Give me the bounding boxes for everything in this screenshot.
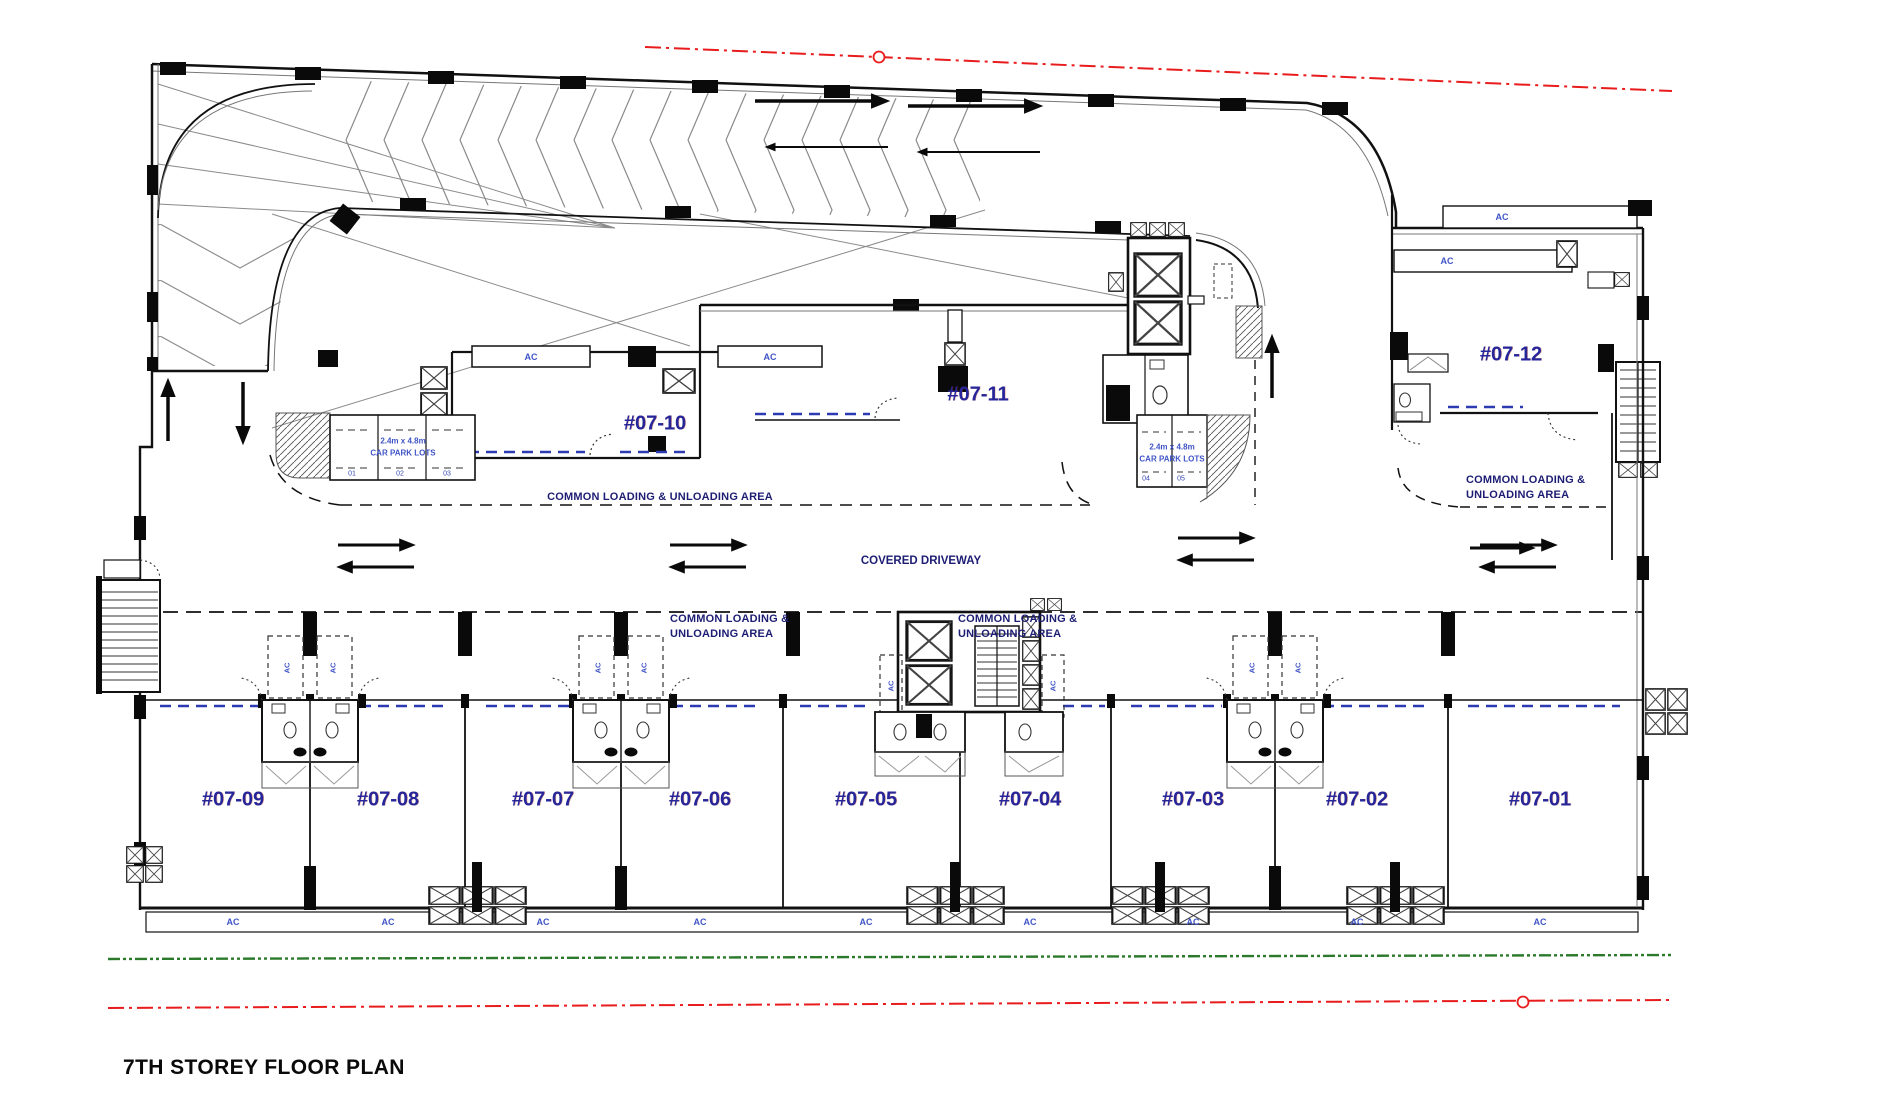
ac-label-vertical: AC <box>594 663 603 674</box>
carpark-lot-05: 05 <box>1177 476 1185 483</box>
covered-driveway <box>140 538 1643 612</box>
carpark-size-left: 2.4m x 4.8m <box>380 437 425 446</box>
boundary-line-green <box>108 955 1672 959</box>
ac-label: AC <box>1534 917 1547 927</box>
drawing-title: 7TH STOREY FLOOR PLAN <box>123 1056 405 1080</box>
ac-label: AC <box>694 917 707 927</box>
ac-label-vertical: AC <box>640 663 649 674</box>
carpark-lot-01: 01 <box>348 471 356 478</box>
ac-label: AC <box>525 352 538 362</box>
ac-label: AC <box>764 352 777 362</box>
boundary-line-red-bottom <box>108 997 1672 1009</box>
toilet-pods <box>240 636 1345 788</box>
unit-07-10-walls <box>421 305 822 458</box>
carpark-size-right: 2.4m x 4.8m <box>1149 443 1194 452</box>
unit-label-07-07: #07-07 <box>512 789 574 812</box>
common-loading-label-upper: COMMON LOADING & UNLOADING AREA <box>547 491 773 503</box>
ac-label: AC <box>1187 917 1200 927</box>
unit-label-07-01: #07-01 <box>1509 789 1571 812</box>
ac-label: AC <box>1441 256 1454 266</box>
carpark-lot-03: 03 <box>443 471 451 478</box>
central-core <box>875 599 1064 776</box>
unit-label-07-03: #07-03 <box>1162 789 1224 812</box>
unit-label-07-12: #07-12 <box>1480 344 1542 367</box>
boundary-line-red-top <box>645 47 1672 91</box>
unit-label-07-05: #07-05 <box>835 789 897 812</box>
unit-07-12-walls <box>1390 195 1660 560</box>
carpark-lot-02: 02 <box>396 471 404 478</box>
unit-label-07-02: #07-02 <box>1326 789 1388 812</box>
unit-label-07-06: #07-06 <box>669 789 731 812</box>
floor-plan-page: #07-10 #07-11 #07-12 #07-09 #07-08 #07-0… <box>0 0 1888 1110</box>
ac-label: AC <box>382 917 395 927</box>
lower-units <box>96 228 1687 932</box>
upper-units <box>270 195 1660 560</box>
unit-label-07-08: #07-08 <box>357 789 419 812</box>
ac-label: AC <box>1024 917 1037 927</box>
unit-label-07-04: #07-04 <box>999 789 1061 812</box>
carpark-lot-04: 04 <box>1142 476 1150 483</box>
covered-driveway-label: COVERED DRIVEWAY <box>861 555 981 567</box>
ac-label-vertical: AC <box>1248 663 1257 674</box>
ac-label: AC <box>1496 212 1509 222</box>
ac-label-vertical: AC <box>1049 681 1058 692</box>
ac-label: AC <box>1351 917 1364 927</box>
ac-label: AC <box>537 917 550 927</box>
unit-label-07-10: #07-10 <box>624 413 686 436</box>
left-stair <box>96 560 160 694</box>
common-loading-label-0712-line2: UNLOADING AREA <box>1466 489 1569 501</box>
ramp-herringbone-hatch <box>158 214 298 366</box>
ac-label-vertical: AC <box>1294 663 1303 674</box>
common-loading-label-0712-line1: COMMON LOADING & <box>1466 474 1585 486</box>
common-loading-label-walkway-left-line1: COMMON LOADING & <box>670 613 789 625</box>
carpark-name-left: CAR PARK LOTS <box>370 449 435 458</box>
unit-label-07-09: #07-09 <box>202 789 264 812</box>
common-loading-label-walkway-right-line1: COMMON LOADING & <box>958 613 1077 625</box>
common-loading-label-walkway-left-line2: UNLOADING AREA <box>670 628 773 640</box>
ramp-chevron-hatch <box>337 80 980 219</box>
ac-label-vertical: AC <box>887 681 896 692</box>
carpark-name-right: CAR PARK LOTS <box>1139 455 1204 464</box>
ramp-area <box>147 62 1396 441</box>
ac-label: AC <box>227 917 240 927</box>
ac-label-vertical: AC <box>283 663 292 674</box>
ac-label-vertical: AC <box>329 663 338 674</box>
common-loading-label-walkway-right-line2: UNLOADING AREA <box>958 628 1061 640</box>
unit-label-07-11: #07-11 <box>947 384 1008 407</box>
ac-label: AC <box>860 917 873 927</box>
